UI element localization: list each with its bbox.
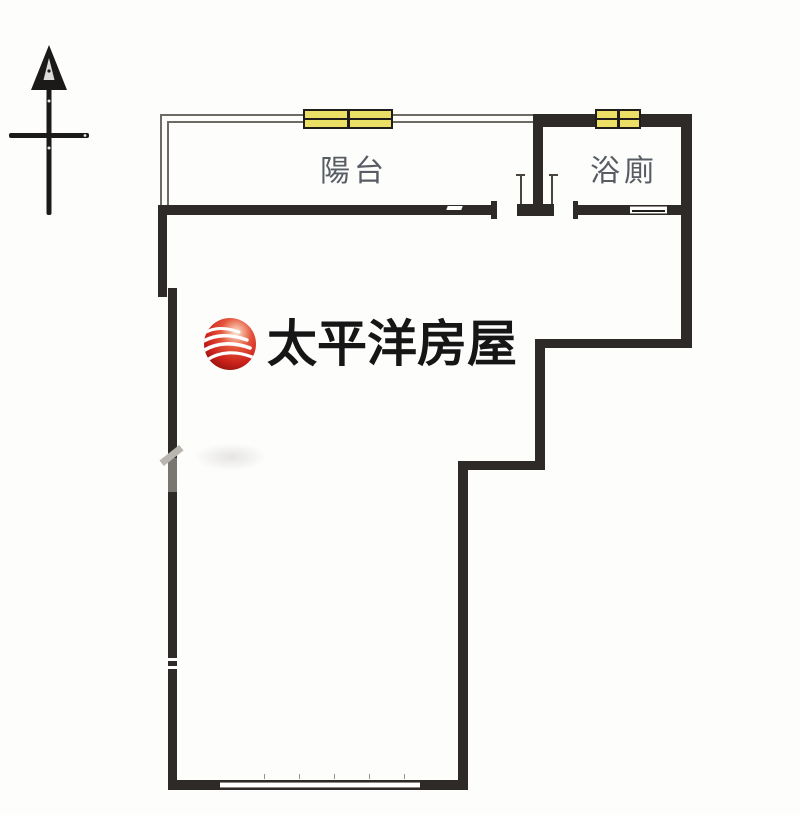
door-jamb-right [551, 176, 553, 204]
wall-step-upper-horizontal [535, 339, 692, 348]
pacific-logo-text: 太平洋房屋 [267, 315, 517, 373]
bottom-window-inset [220, 782, 420, 788]
wall-left-upper [158, 205, 167, 297]
wall-bathroom-bottom-endcap [573, 201, 578, 219]
balcony-window [303, 109, 393, 129]
wall-step-vertical [535, 339, 545, 470]
balcony-label: 陽台 [320, 146, 388, 190]
pacific-logo-globe-icon [203, 317, 257, 371]
floorplan-page: { "colors": { "background": "#fdfdfc", "… [0, 0, 800, 815]
balcony-railing-outer-left [160, 114, 162, 206]
wall-faded-segment [168, 458, 177, 492]
balcony-railing-inner-left [167, 121, 169, 206]
bathroom-window-mullion-v [617, 111, 620, 127]
wall-left-lower [168, 288, 177, 790]
bathroom-label: 浴廁 [590, 146, 658, 190]
wall-main-top [158, 205, 491, 215]
door-jamb-right-cap [549, 174, 558, 176]
north-arrow-icon [6, 38, 94, 220]
wall-main-top-endcap [491, 201, 497, 219]
door-jamb-left [520, 176, 522, 204]
paper-smudge [195, 443, 267, 471]
wall-left-notch-a [167, 658, 178, 661]
balcony-window-mullion-v [347, 111, 350, 127]
wall-left-notch-b [167, 666, 178, 669]
wall-balcony-bathroom-divider [533, 114, 543, 215]
bathroom-vent-inset [630, 206, 667, 214]
bathroom-window [595, 109, 641, 129]
bathroom-vent-line [632, 210, 665, 212]
wall-notch-artifact [446, 206, 462, 210]
wall-right-lower [458, 461, 468, 790]
bottom-window-ticks [230, 774, 415, 779]
wall-right-upper [681, 114, 692, 348]
pacific-logo: 太平洋房屋 [203, 314, 517, 374]
wall-step-lower-horizontal [458, 461, 545, 470]
door-jamb-left-cap [516, 174, 525, 176]
